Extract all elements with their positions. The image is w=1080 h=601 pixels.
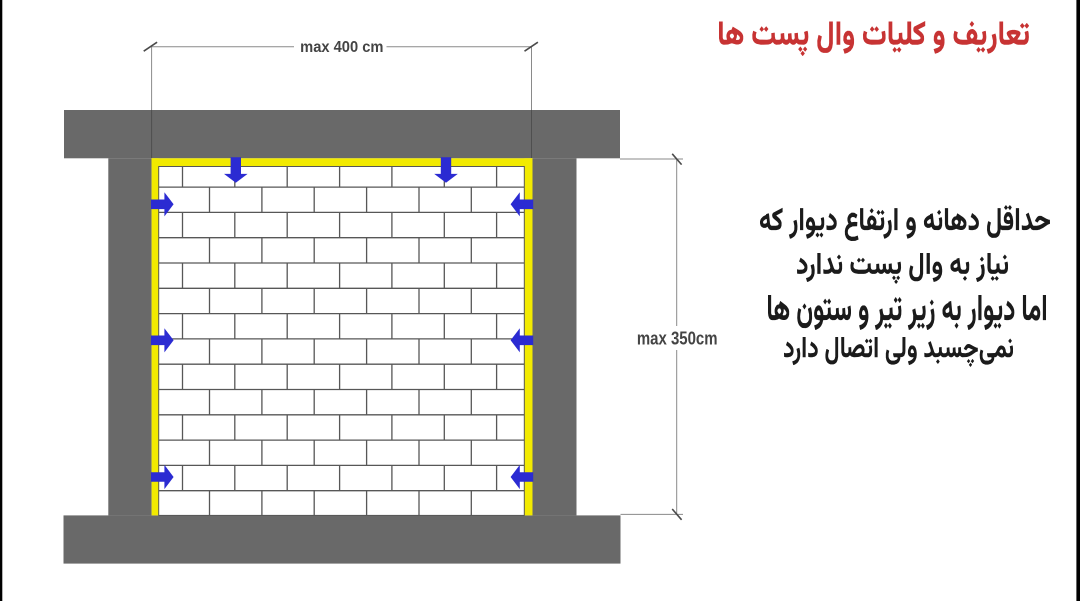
svg-text:max 350cm: max 350cm [637, 328, 718, 348]
svg-text:max 400 cm: max 400 cm [300, 39, 383, 56]
